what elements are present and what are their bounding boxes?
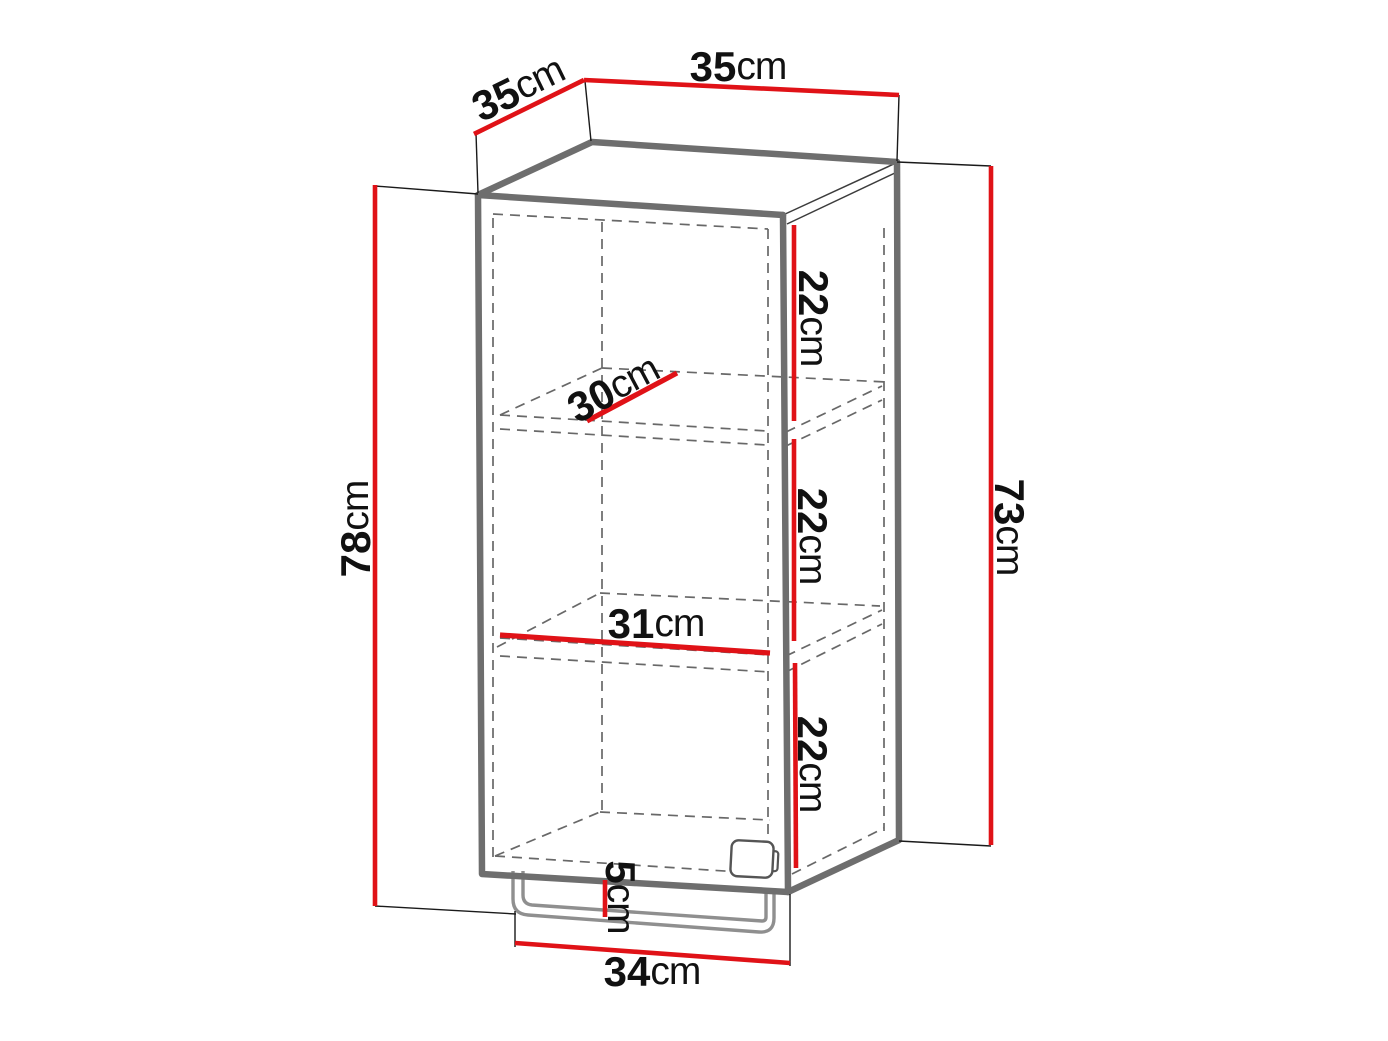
dim-label-rail-height: 5cm	[598, 860, 645, 933]
dim-label-bottom-section: 22cm	[790, 716, 837, 813]
ext-height-left-top	[375, 186, 478, 194]
dim-label-carcass-height: 73cm	[987, 479, 1034, 576]
dim-label-top-section: 22cm	[791, 270, 838, 367]
ext-depth-front	[476, 133, 478, 193]
door-handle	[730, 840, 779, 878]
cabinet-front-face	[478, 195, 788, 892]
dim-label-shelf-width: 31cm	[608, 600, 705, 647]
ext-height-right-top	[897, 162, 991, 166]
ext-width-right	[897, 95, 899, 161]
dim-label-middle-section: 22cm	[790, 488, 837, 585]
door-handle-plate	[730, 840, 774, 878]
dim-label-base-width: 34cm	[604, 948, 701, 995]
dim-label-overall-height: 78cm	[332, 481, 379, 578]
ext-height-right-bottom	[899, 841, 991, 846]
dim-label-top-depth: 35cm	[464, 46, 572, 131]
dim-label-top-width: 35cm	[690, 43, 787, 90]
ext-height-left-bottom	[375, 906, 516, 914]
diagram-canvas: 35cm 35cm 78cm 73cm 22cm 22cm 22cm 30cm …	[0, 0, 1388, 1041]
cabinet-dimension-diagram: 35cm 35cm 78cm 73cm 22cm 22cm 22cm 30cm …	[0, 0, 1388, 1041]
ext-depth-back	[585, 81, 591, 141]
